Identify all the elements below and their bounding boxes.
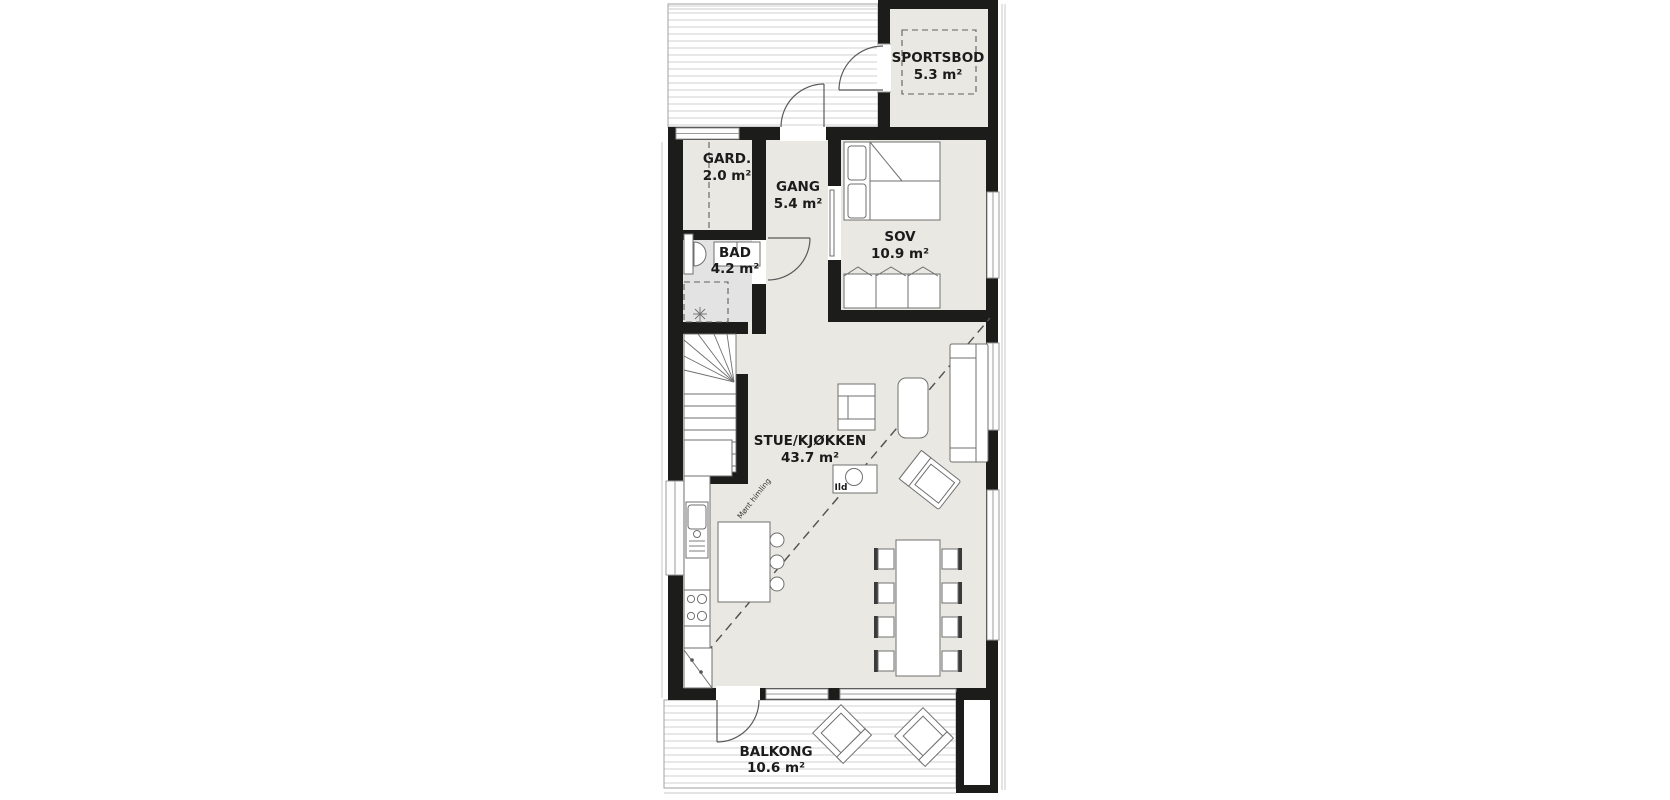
tall-cabinet [684, 440, 732, 476]
cooktop [684, 590, 710, 626]
fireplace-label: Ild [835, 483, 848, 493]
bar-stool [770, 533, 784, 547]
fireplace: Ild [833, 465, 877, 493]
room-area-stue: 43.7 m² [781, 450, 839, 466]
dining-chair [874, 548, 894, 570]
window-kitchen-west [666, 481, 684, 575]
dining-chair [942, 582, 962, 604]
dining-chair [942, 548, 962, 570]
sov-stue-wall [828, 310, 988, 322]
room-area-gang: 5.4 m² [774, 196, 823, 212]
room-label-sov: SOV [884, 229, 916, 245]
window-stue-east-upper [987, 343, 999, 430]
tv-bench [838, 384, 875, 430]
corner-cabinet [684, 648, 712, 688]
balcony-storage-box [956, 692, 998, 793]
window-sov-east [987, 192, 999, 278]
floor-drain-icon [693, 307, 707, 321]
bar-stool [770, 577, 784, 591]
room-label-sportsbod: SPORTSBOD [892, 50, 985, 66]
room-area-sportsbod: 5.3 m² [914, 67, 963, 83]
window-south-band [766, 689, 956, 699]
window-north [676, 128, 739, 139]
dining-chair [942, 616, 962, 638]
bar-stool [770, 555, 784, 569]
room-label-gard: GARD. [703, 151, 751, 167]
room-area-balkong: 10.6 m² [747, 760, 805, 776]
dining-chair [874, 650, 894, 672]
dining-chair [874, 582, 894, 604]
bad-stair-wall [668, 322, 748, 334]
west-wall [668, 140, 683, 700]
sofa [950, 344, 988, 462]
room-area-gard: 2.0 m² [703, 168, 752, 184]
bed [844, 142, 940, 220]
sov-sliding-door [828, 186, 841, 260]
room-label-gang: GANG [776, 179, 820, 195]
room-label-balkong: BALKONG [739, 744, 812, 760]
window-stue-east-lower [987, 490, 999, 640]
floor-plan-svg: Ild SPORTSBOD 5.3 m² GARD. 2.0 m² GANG [0, 0, 1670, 800]
kitchen-island [718, 522, 784, 602]
coffee-table [898, 378, 928, 438]
dining-chair [942, 650, 962, 672]
stair-east-wall [736, 374, 748, 484]
room-label-bad: BAD [719, 245, 751, 261]
room-area-sov: 10.9 m² [871, 246, 929, 262]
room-area-bad: 4.2 m² [711, 261, 760, 277]
kitchen-sink [686, 502, 708, 558]
dining-chair [874, 616, 894, 638]
room-label-stue: STUE/KJØKKEN [754, 433, 866, 449]
floor-plan-page: Ild SPORTSBOD 5.3 m² GARD. 2.0 m² GANG [0, 0, 1670, 800]
gard-bad-wall [668, 230, 766, 240]
